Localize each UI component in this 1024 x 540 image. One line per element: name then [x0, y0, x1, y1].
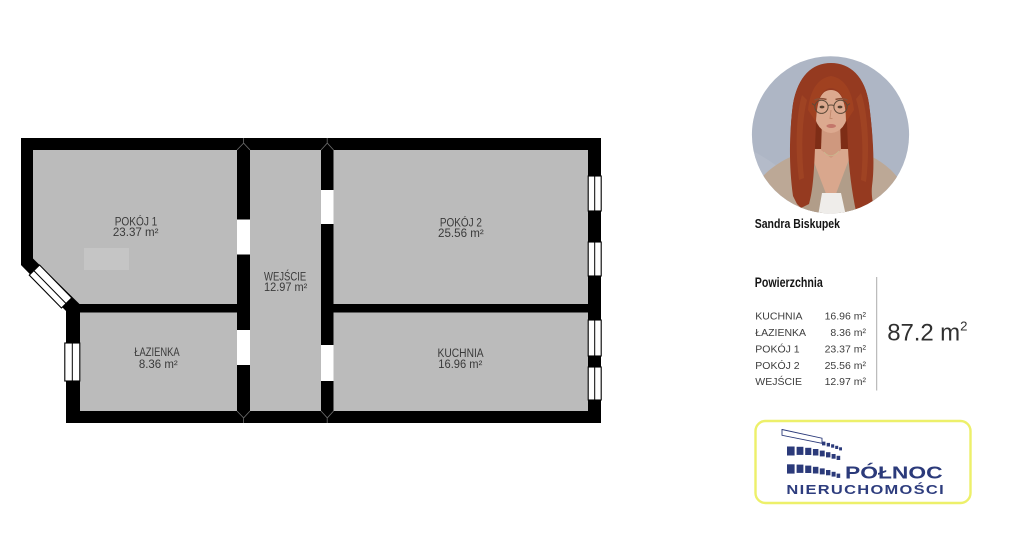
svg-text:8.36 m²: 8.36 m² [139, 359, 178, 371]
svg-text:25.56 m²: 25.56 m² [438, 228, 484, 240]
svg-text:KUCHNIA: KUCHNIA [755, 311, 802, 323]
svg-text:Sandra Biskupek: Sandra Biskupek [755, 217, 841, 231]
svg-text:25.56 m²: 25.56 m² [825, 360, 867, 372]
svg-text:23.37 m²: 23.37 m² [825, 343, 867, 355]
svg-text:Powierzchnia: Powierzchnia [755, 275, 823, 290]
svg-text:POKÓJ 1: POKÓJ 1 [755, 342, 800, 355]
svg-text:POKÓJ 2: POKÓJ 2 [755, 359, 800, 372]
svg-text:NIERUCHOMOŚCI: NIERUCHOMOŚCI [786, 482, 945, 497]
svg-text:87.2 m2: 87.2 m2 [887, 319, 967, 347]
svg-text:ŁAZIENKA: ŁAZIENKA [134, 347, 180, 359]
svg-text:12.97 m²: 12.97 m² [825, 376, 867, 388]
svg-text:WEJŚCIE: WEJŚCIE [755, 375, 802, 388]
svg-text:PÓŁNOC: PÓŁNOC [845, 461, 943, 482]
svg-text:23.37 m²: 23.37 m² [113, 227, 159, 239]
svg-text:12.97 m²: 12.97 m² [264, 282, 307, 294]
svg-text:8.36 m²: 8.36 m² [830, 327, 866, 339]
svg-text:16.96 m²: 16.96 m² [438, 359, 482, 371]
svg-text:ŁAZIENKA: ŁAZIENKA [755, 327, 806, 339]
svg-text:16.96 m²: 16.96 m² [825, 311, 867, 323]
